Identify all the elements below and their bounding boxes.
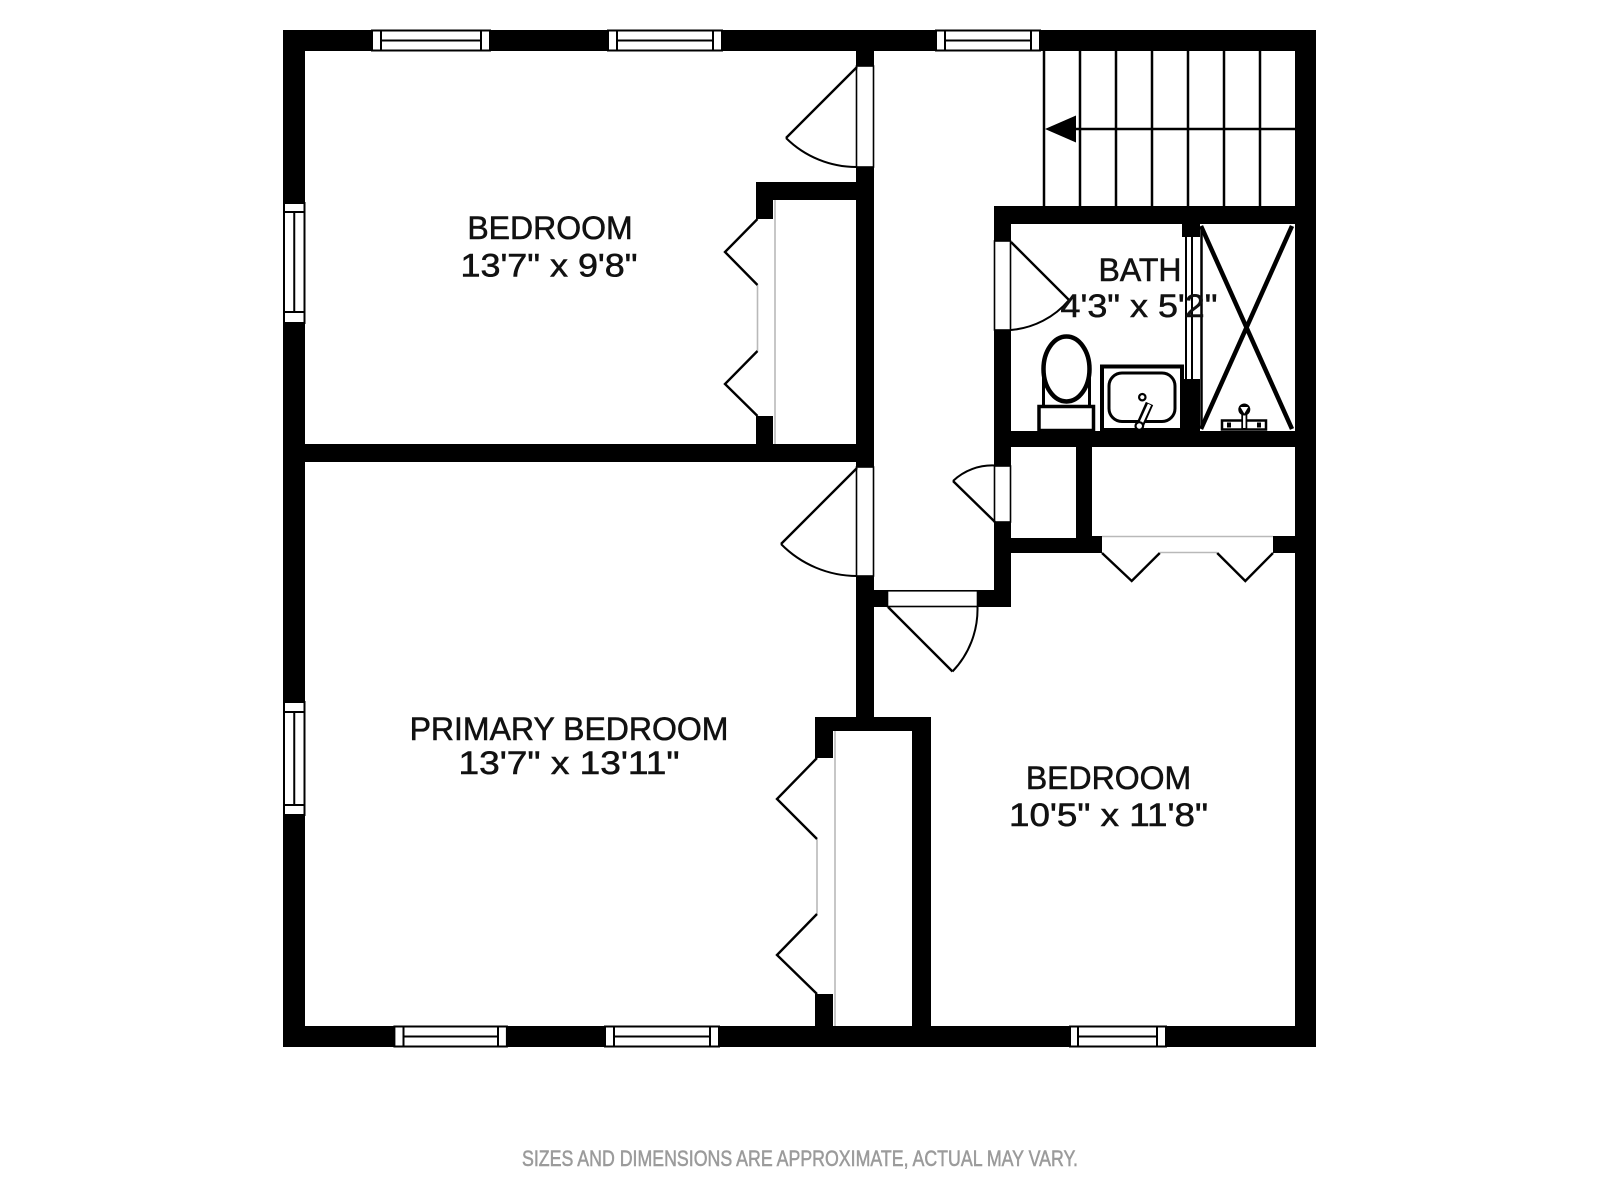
svg-text:13'7" x 13'11": 13'7" x 13'11" — [459, 745, 680, 781]
svg-text:13'7" x 9'8": 13'7" x 9'8" — [461, 248, 638, 284]
svg-text:10'5" x 11'8": 10'5" x 11'8" — [1009, 797, 1208, 833]
svg-text:4'3" x 5'2": 4'3" x 5'2" — [1061, 288, 1218, 324]
svg-text:BEDROOM: BEDROOM — [467, 210, 632, 246]
svg-text:BATH: BATH — [1099, 252, 1182, 288]
svg-text:PRIMARY BEDROOM: PRIMARY BEDROOM — [410, 711, 729, 747]
svg-text:SIZES AND DIMENSIONS ARE APPRO: SIZES AND DIMENSIONS ARE APPROXIMATE, AC… — [522, 1146, 1078, 1171]
svg-text:BEDROOM: BEDROOM — [1026, 760, 1191, 796]
